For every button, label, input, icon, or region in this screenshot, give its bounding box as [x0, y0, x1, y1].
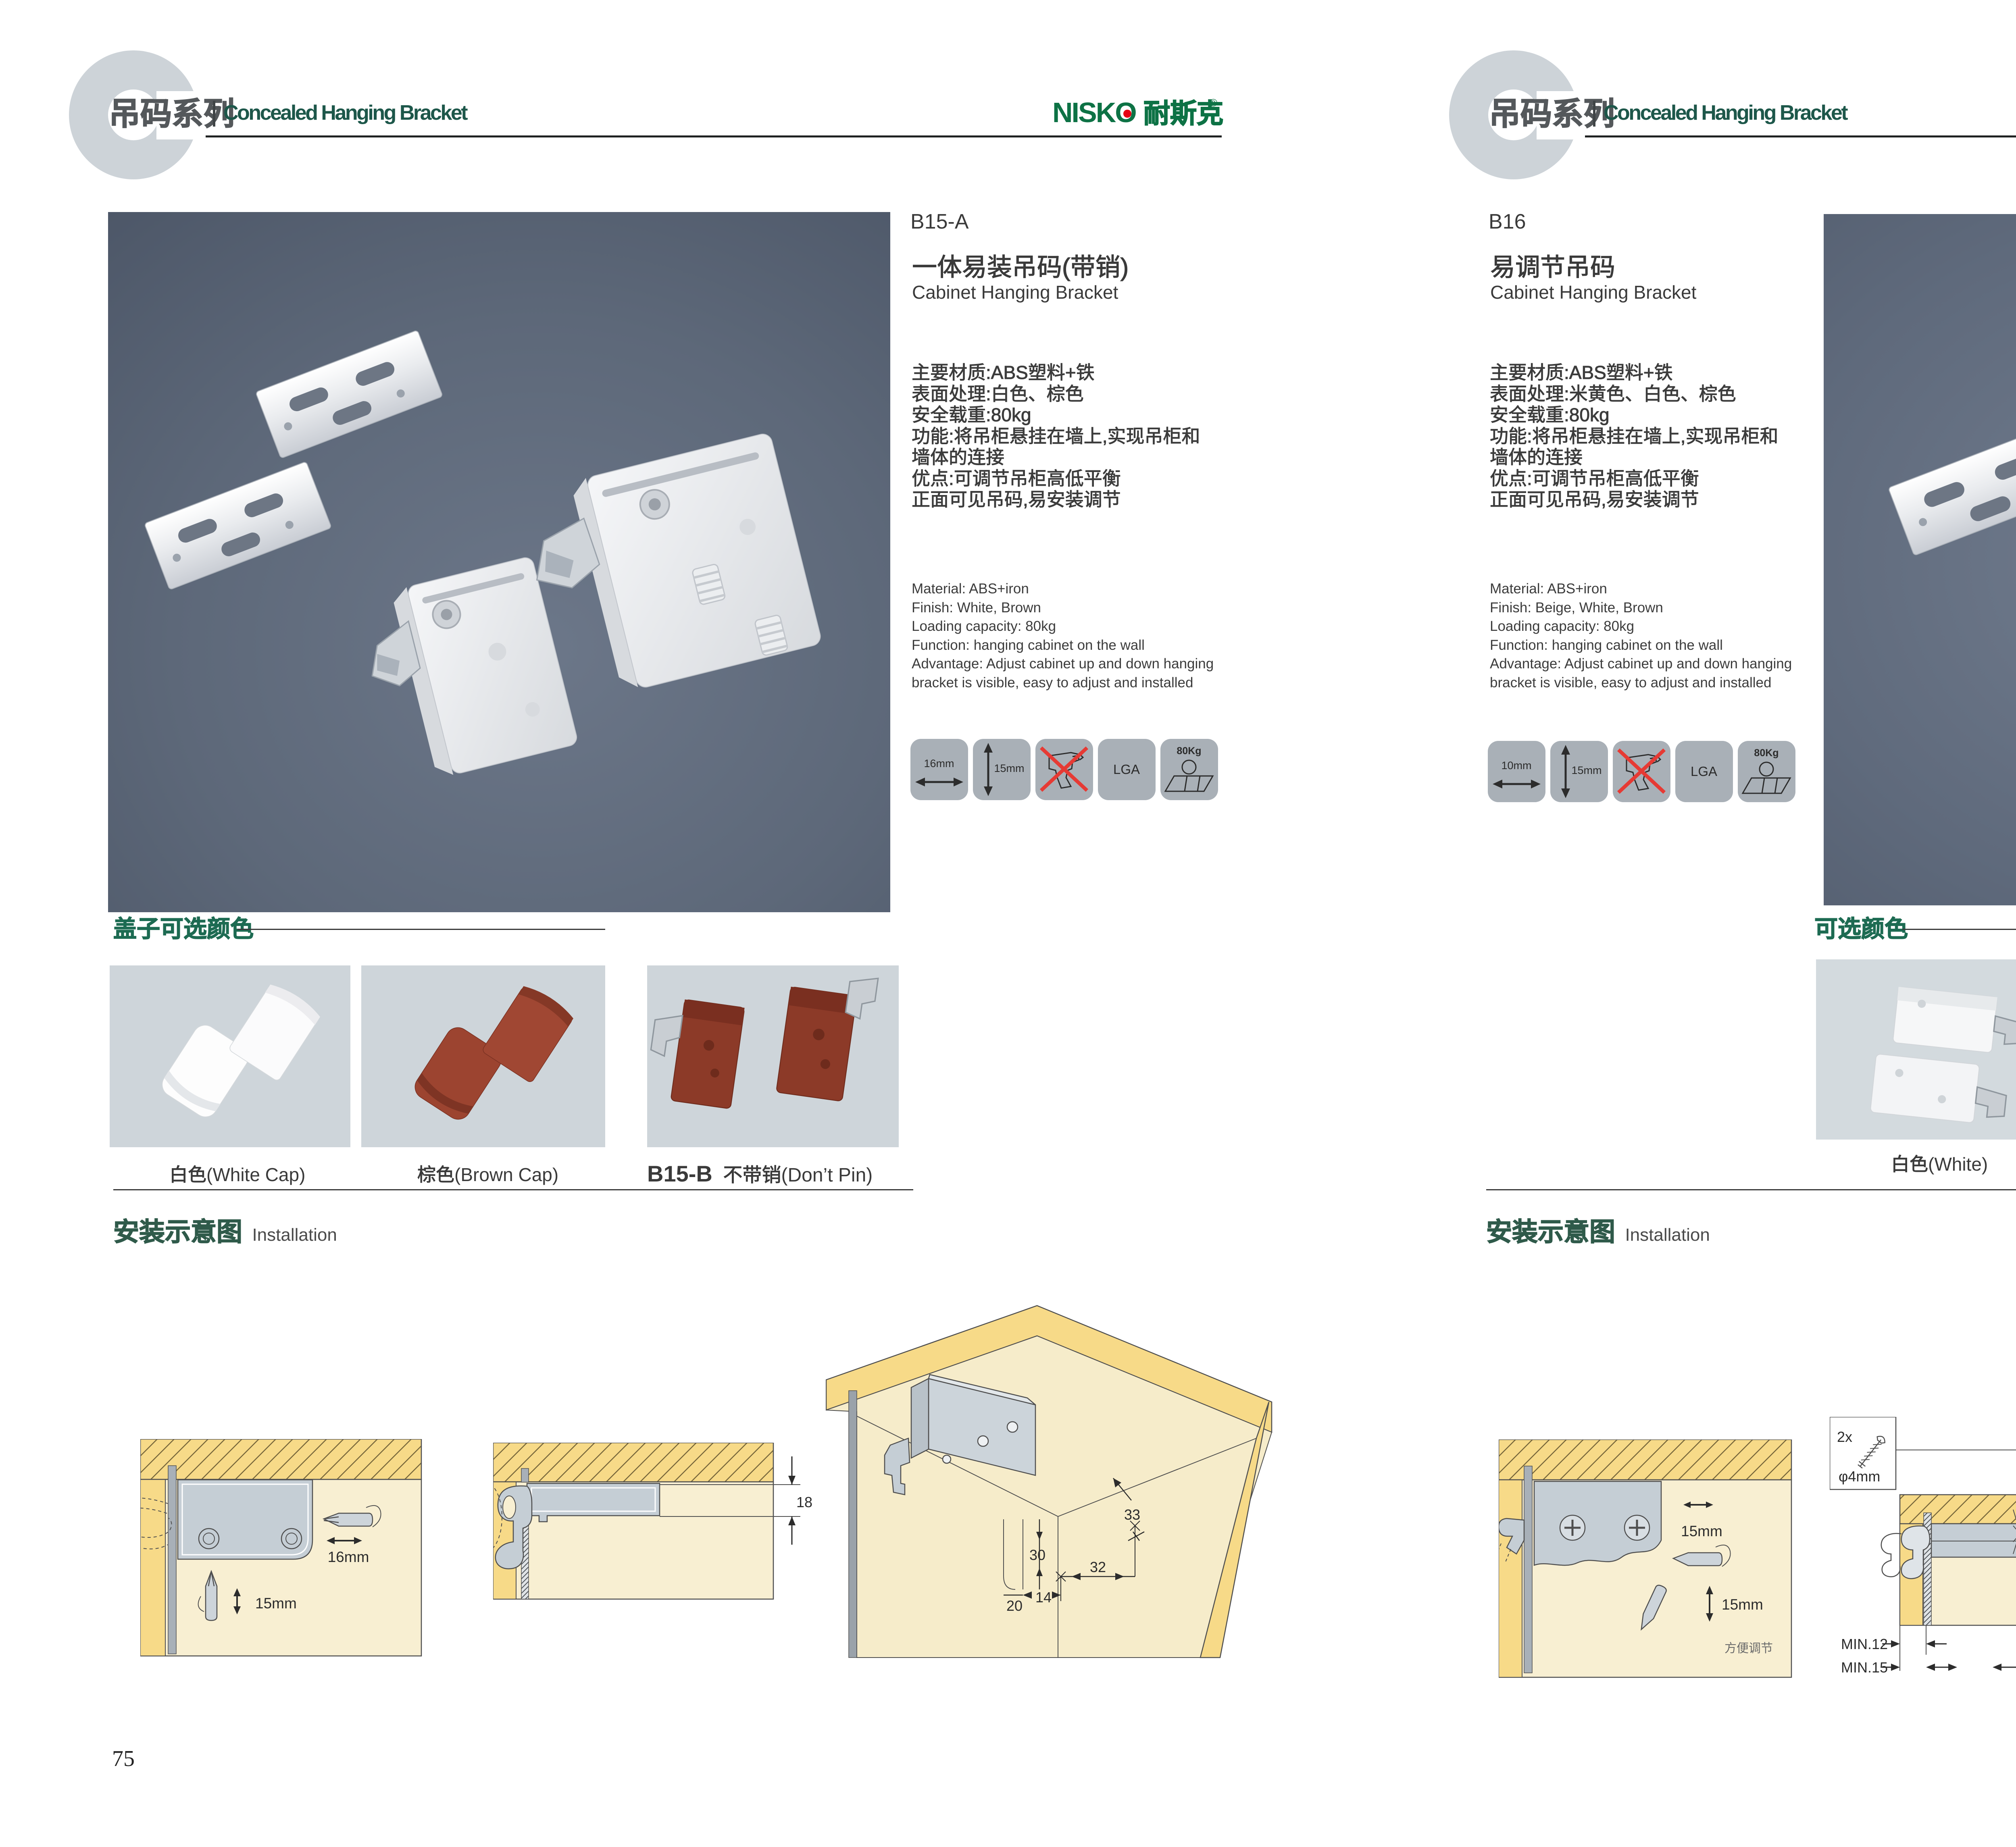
svg-text:方便调节: 方便调节 — [1724, 1642, 1773, 1655]
svg-text:10mm: 10mm — [1501, 759, 1531, 772]
svg-text:16mm: 16mm — [924, 757, 954, 770]
svg-text:2x: 2x — [1837, 1429, 1852, 1445]
svg-text:80Kg: 80Kg — [1177, 745, 1201, 757]
svg-text:15mm: 15mm — [994, 762, 1024, 774]
svg-text:30: 30 — [1029, 1547, 1045, 1563]
svg-text:18: 18 — [796, 1494, 812, 1510]
svg-text:LGA: LGA — [1691, 764, 1717, 779]
svg-text:MIN.15: MIN.15 — [1841, 1659, 1888, 1676]
svg-text:15mm: 15mm — [1571, 764, 1602, 776]
svg-text:16mm: 16mm — [328, 1549, 369, 1565]
svg-text:15mm: 15mm — [1722, 1596, 1763, 1613]
svg-text:32: 32 — [1090, 1559, 1106, 1575]
svg-text:LGA: LGA — [1113, 762, 1140, 777]
svg-text:15mm: 15mm — [1681, 1523, 1722, 1539]
svg-text:33: 33 — [1124, 1506, 1140, 1523]
svg-text:φ4mm: φ4mm — [1839, 1468, 1880, 1485]
svg-text:80Kg: 80Kg — [1754, 747, 1779, 759]
svg-text:14: 14 — [1035, 1589, 1052, 1606]
svg-text:MIN.12: MIN.12 — [1841, 1636, 1888, 1652]
svg-text:20: 20 — [1006, 1597, 1023, 1614]
svg-text:15mm: 15mm — [255, 1595, 297, 1612]
